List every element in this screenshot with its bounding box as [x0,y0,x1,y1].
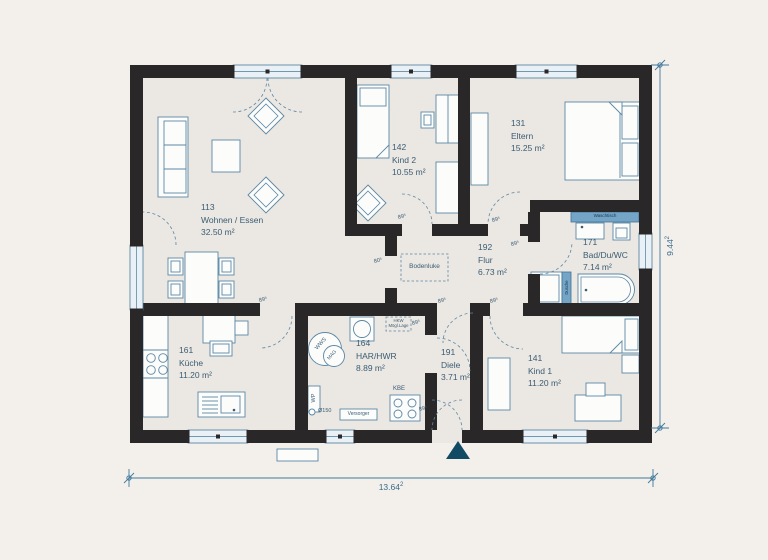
room-name: Diele [441,359,470,372]
window-mullion [216,435,220,439]
kitchen-table [203,312,235,343]
kbe-unit [390,395,420,421]
stove-burner [147,366,156,375]
faucet-dot [585,289,588,292]
wall-segment [355,430,432,443]
window-jamb [130,309,143,312]
stove-burner [159,354,168,363]
room-number: 142 [392,141,426,154]
wardrobe [622,355,639,373]
room-label-flur: 192 Flur 6.73 m² [478,241,507,279]
wall-segment [470,316,483,430]
room-number: 131 [511,117,545,130]
window-jamb [389,65,392,78]
room-area: 15.25 m² [511,142,545,155]
room-name: HAR/HWR [356,350,397,363]
room-label-diele: 191 Diele 3.71 m² [441,346,470,384]
chair-inner [213,344,229,353]
room-number: 164 [356,337,397,350]
window-jamb [514,65,517,78]
window-jamb [431,65,434,78]
room-name: Küche [179,357,212,370]
chair-inner [222,284,231,295]
room-area: 32.50 m² [201,226,263,239]
room-number: 141 [528,352,561,365]
window-jamb [577,65,580,78]
wall-segment [432,65,515,78]
pillow [622,143,638,176]
window-jamb [639,269,652,272]
room-number: 191 [441,346,470,359]
hkw-label: HKW Mögl.Lage [386,318,411,328]
room-number: 113 [201,201,263,214]
cabinet [488,358,510,410]
room-area: 7.14 m² [583,261,628,274]
room-label-kind2: 142 Kind 2 10.55 m² [392,141,426,179]
room-area: 11.20 m² [528,377,561,390]
kbe-port [394,410,402,418]
wall-segment [345,224,402,236]
room-area: 3.71 m² [441,371,470,384]
wall-segment [530,200,652,212]
room-area: 10.55 m² [392,166,426,179]
wall-segment [302,65,390,78]
room-area: 11.20 m² [179,369,212,382]
wall-segment [345,78,357,228]
wall-segment [470,303,490,316]
pillow [360,88,386,106]
wall-segment [130,310,143,443]
wardrobe [471,113,488,185]
width-dimension-label: 13.642 [361,480,421,492]
wall-segment [143,303,260,316]
window-jamb [521,430,524,443]
window-jamb [639,232,652,235]
wall-segment [639,270,652,443]
chair [235,321,248,335]
wall-segment [458,78,470,225]
wall-segment [432,224,470,236]
room-label-wohnen-essen: 113 Wohnen / Essen 32.50 m² [201,201,263,239]
pillow [622,106,638,139]
monitor-screen [424,115,431,125]
kbe-port [408,399,416,407]
window-jamb [354,430,357,443]
window-jamb [130,244,143,247]
height-value: 9.44 [665,239,675,256]
width-exp: 2 [400,482,403,488]
wall-segment [425,303,437,335]
window-mullion [266,70,270,74]
room-label-kind1: 141 Kind 1 11.20 m² [528,352,561,390]
wall-segment [470,224,488,236]
floor-plan-drawing [0,0,768,560]
kbe-label: KBE [393,386,405,392]
wall-segment [523,303,652,316]
height-exp: 2 [665,236,671,239]
wall-segment [385,236,397,256]
window-jamb [247,430,250,443]
width-value: 13.64 [379,482,400,492]
kbe-port [408,410,416,418]
room-name: Eltern [511,130,545,143]
washer-drum [354,321,371,338]
faucet-dot [581,226,584,229]
chair-inner [171,261,180,272]
room-name: Bad/Du/WC [583,249,628,262]
chair-inner [171,284,180,295]
height-dimension-label: 9.442 [663,228,675,264]
room-name: Flur [478,254,507,267]
wp-label: WP [311,385,317,411]
dining-table [185,252,218,304]
window-mullion [545,70,549,74]
wall-segment [462,430,522,443]
room-label-bad: 171 Bad/Du/WC 7.14 m² [583,236,628,274]
pillow [625,319,638,350]
room-name: Wohnen / Essen [201,214,263,227]
chair-inner [222,261,231,272]
wall-segment [130,65,233,78]
window-mullion [338,435,342,439]
wall-segment [295,303,308,430]
bodenluke-label: Bodenluke [401,263,448,270]
window-jamb [587,430,590,443]
window-jamb [232,65,235,78]
window-jamb [324,430,327,443]
wall-segment [528,212,540,242]
faucet-dot [233,409,236,412]
window-jamb [301,65,304,78]
room-label-kueche: 161 Küche 11.20 m² [179,344,212,382]
pipe-diameter-label: Ø150 [318,408,331,414]
desk [575,395,621,421]
room-area: 8.89 m² [356,362,397,375]
wall-segment [248,430,325,443]
room-number: 171 [583,236,628,249]
sink [221,396,240,413]
wall-segment [130,65,143,245]
hkw-line2: Mögl.Lage [386,323,411,328]
room-name: Kind 2 [392,154,426,167]
wall-segment [425,373,437,430]
kbe-port [394,399,402,407]
exterior-step [277,449,318,461]
desk [436,162,460,213]
room-name: Kind 1 [528,365,561,378]
room-number: 161 [179,344,212,357]
room-label-har-hwr: 164 HAR/HWR 8.89 m² [356,337,397,375]
window-jamb [187,430,190,443]
window-mullion [409,70,413,74]
room-label-eltern: 131 Eltern 15.25 m² [511,117,545,155]
wall-segment [528,274,540,304]
stove-burner [147,354,156,363]
window-mullion [553,435,557,439]
room-area: 6.73 m² [478,266,507,279]
wall-segment [308,303,425,316]
room-number: 192 [478,241,507,254]
versorger-label: Versorger [340,411,377,417]
waschtisch-label: Waschtisch [571,213,639,218]
sofa-cushions [164,121,186,193]
entrance-marker [446,441,470,459]
stove-burner [159,366,168,375]
coffee-table [212,140,240,172]
floor-plan: 113 Wohnen / Essen 32.50 m² 142 Kind 2 1… [0,0,768,560]
dusche-label: Dusche [564,272,569,303]
chair [586,383,605,396]
